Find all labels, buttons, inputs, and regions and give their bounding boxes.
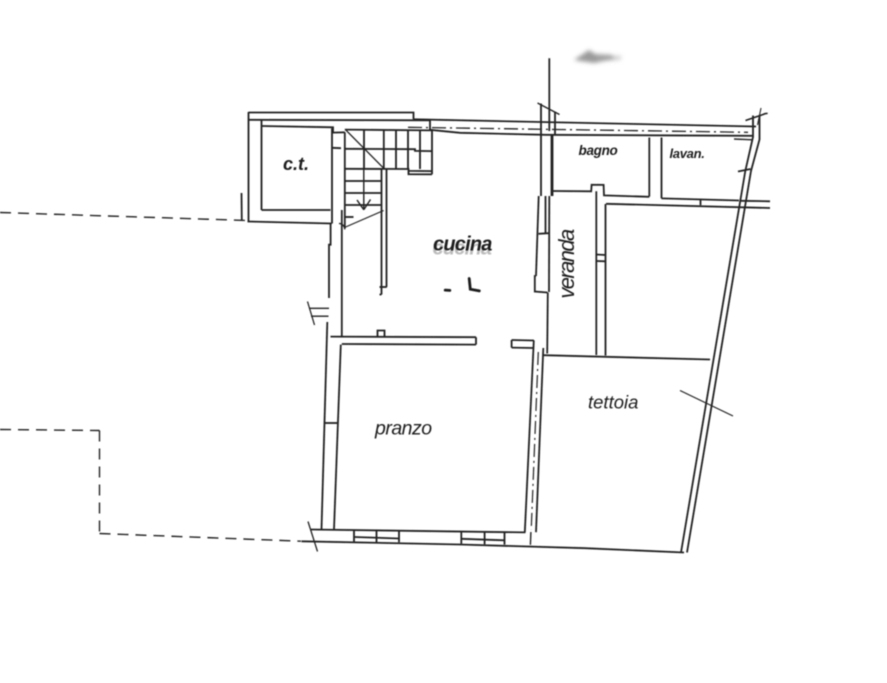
- svg-text:bagno: bagno: [579, 143, 618, 158]
- svg-text:pranzo: pranzo: [374, 418, 432, 440]
- svg-text:cucina: cucina: [433, 238, 492, 260]
- svg-text:lavan.: lavan.: [670, 146, 705, 161]
- svg-text:veranda: veranda: [554, 229, 579, 299]
- svg-text:c.t.: c.t.: [283, 154, 309, 174]
- svg-text:tettoia: tettoia: [588, 392, 638, 413]
